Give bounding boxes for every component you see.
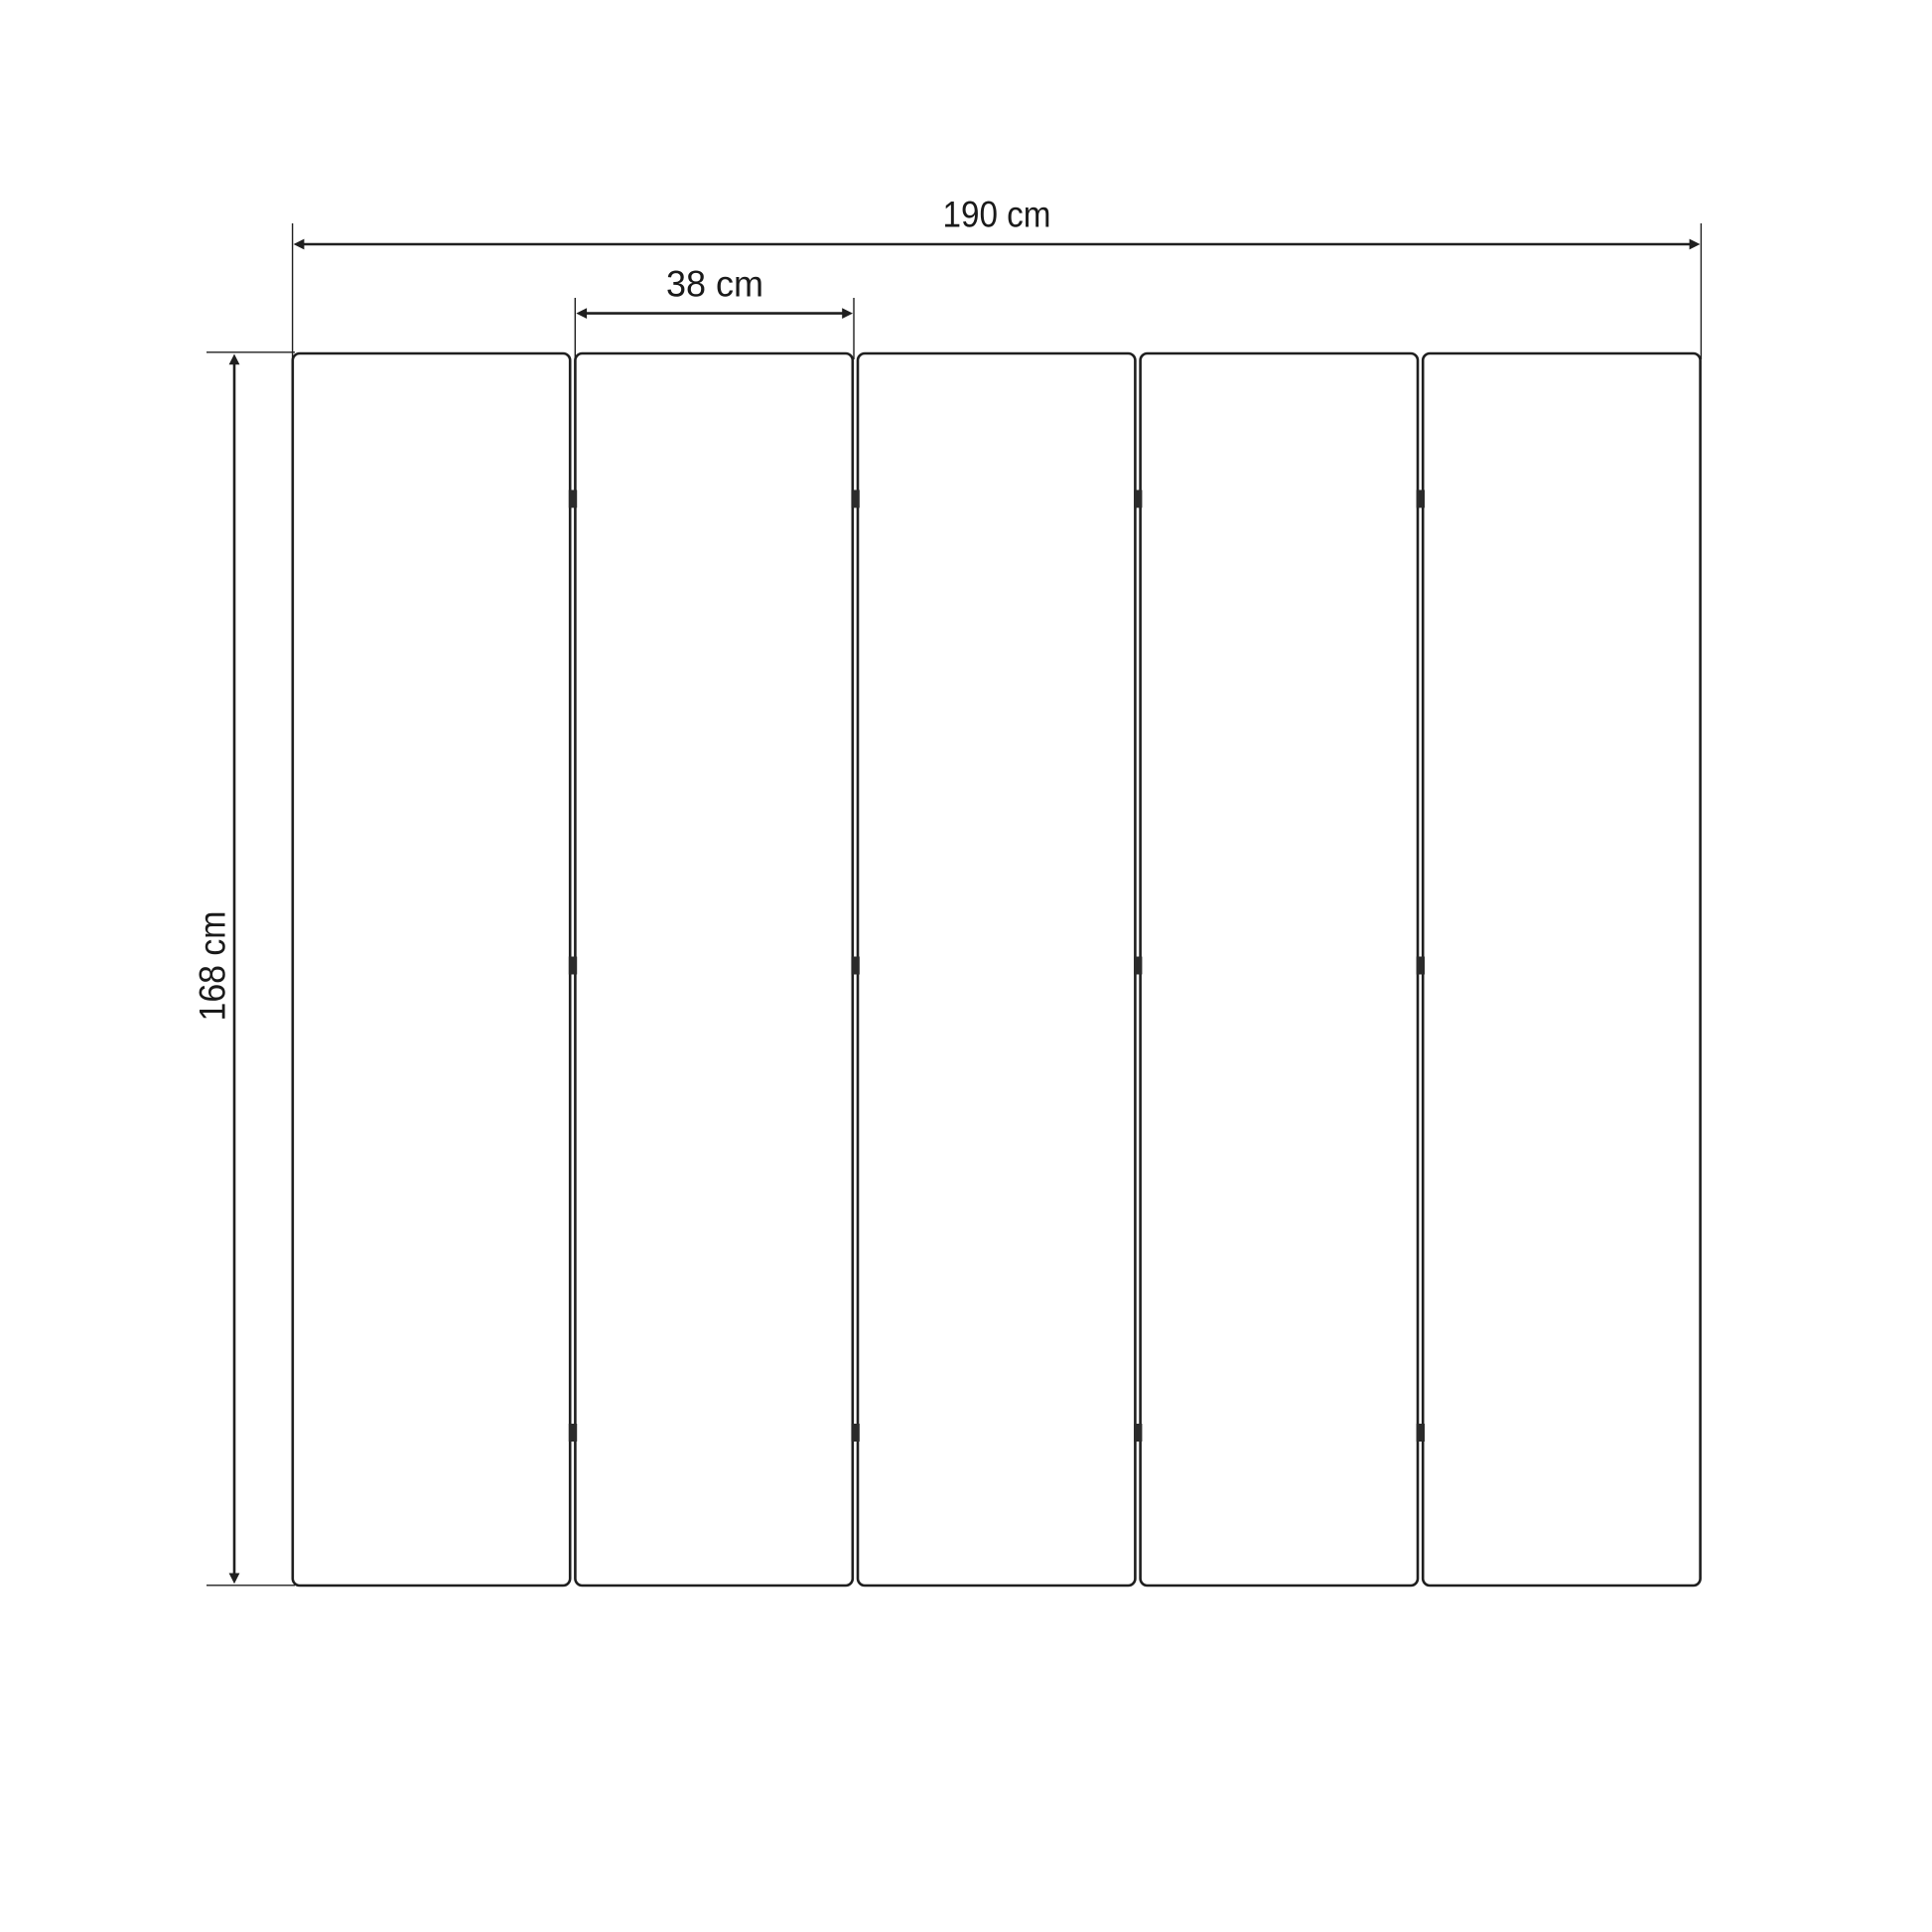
svg-text:168 cm: 168 cm xyxy=(193,911,233,1022)
svg-text:38 cm: 38 cm xyxy=(666,264,763,305)
svg-text:190 cm: 190 cm xyxy=(943,195,1051,235)
